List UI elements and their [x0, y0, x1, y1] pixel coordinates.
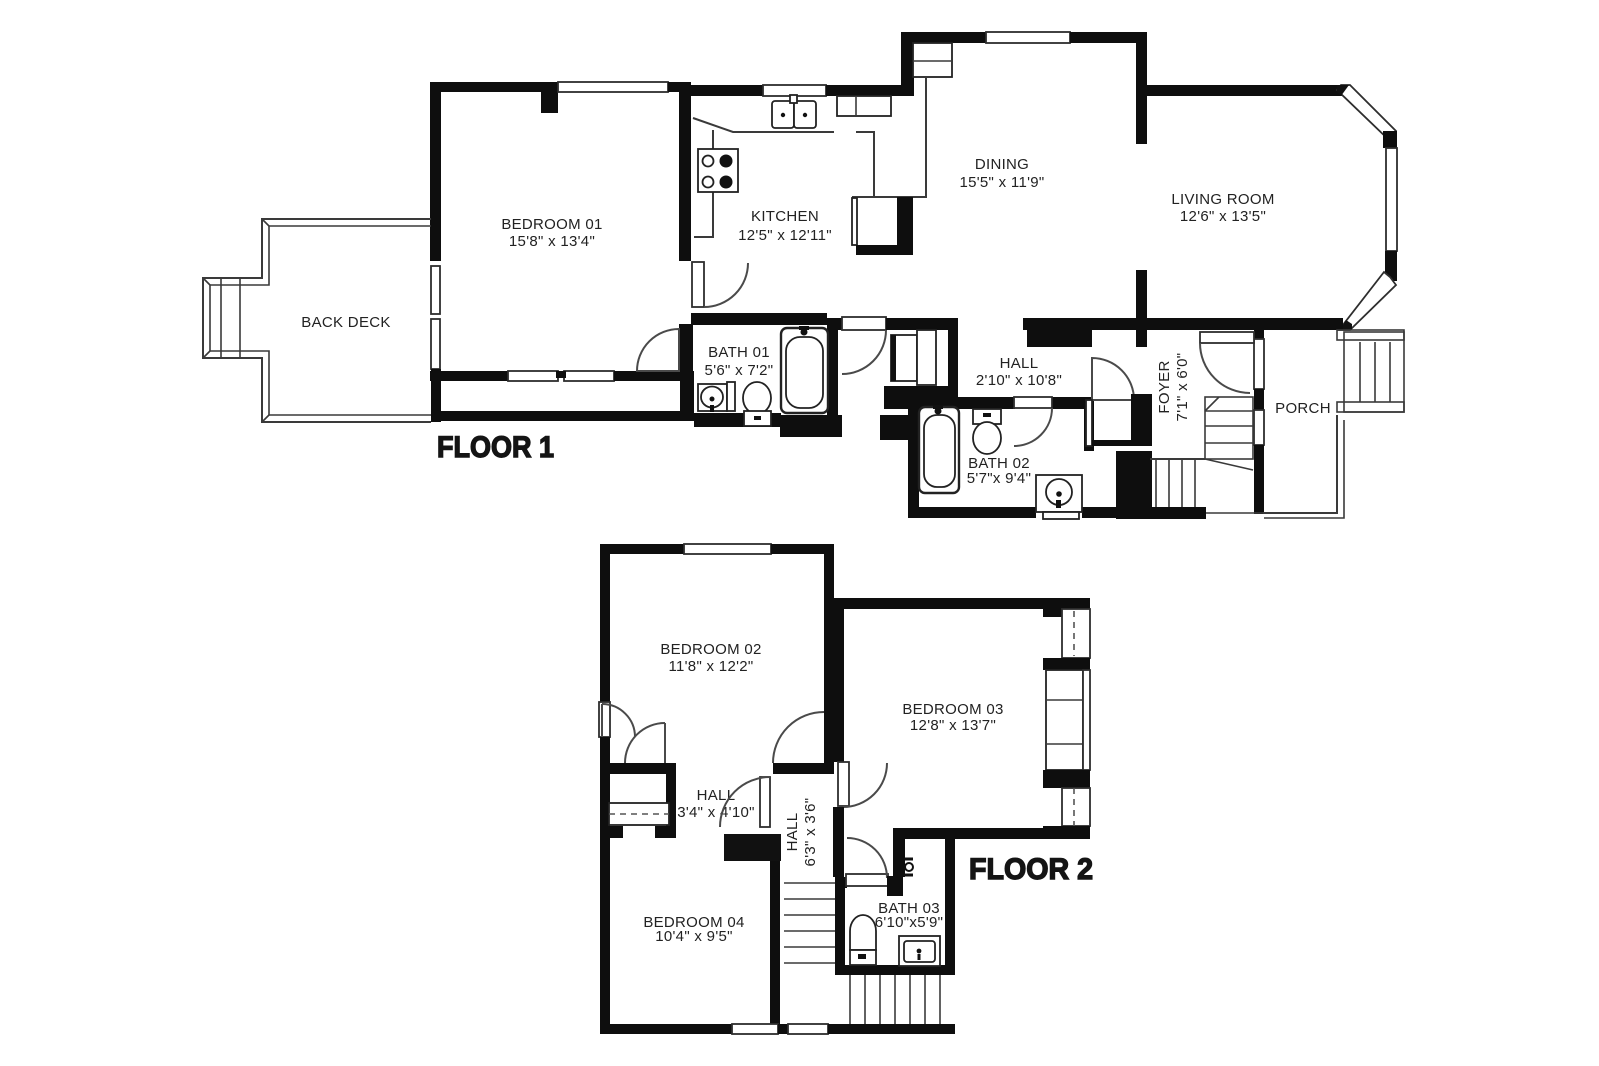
svg-text:6'10"x5'9": 6'10"x5'9" [875, 914, 944, 931]
svg-text:3'4" x 4'10": 3'4" x 4'10" [677, 804, 755, 821]
svg-text:FLOOR 1: FLOOR 1 [437, 431, 554, 464]
svg-text:BATH 01: BATH 01 [708, 344, 770, 361]
svg-text:7'1" x 6'0": 7'1" x 6'0" [1174, 353, 1191, 422]
svg-text:5'7"x 9'4": 5'7"x 9'4" [967, 470, 1031, 487]
svg-text:FLOOR 2: FLOOR 2 [969, 853, 1093, 886]
svg-text:15'5" x 11'9": 15'5" x 11'9" [959, 174, 1044, 191]
svg-text:10'4" x 9'5": 10'4" x 9'5" [655, 928, 733, 945]
svg-text:12'6" x 13'5": 12'6" x 13'5" [1180, 208, 1266, 225]
svg-text:HALL: HALL [1000, 355, 1039, 372]
svg-text:15'8" x 13'4": 15'8" x 13'4" [509, 233, 595, 250]
svg-text:11'8" x 12'2": 11'8" x 12'2" [668, 658, 753, 675]
svg-text:PORCH: PORCH [1275, 400, 1331, 417]
svg-text:HALL: HALL [784, 813, 801, 852]
svg-text:12'8" x 13'7": 12'8" x 13'7" [910, 717, 996, 734]
svg-text:5'6" x 7'2": 5'6" x 7'2" [705, 362, 774, 379]
svg-text:KITCHEN: KITCHEN [751, 208, 819, 225]
svg-text:HALL: HALL [697, 787, 736, 804]
svg-text:BEDROOM 03: BEDROOM 03 [902, 701, 1003, 718]
svg-text:LIVING ROOM: LIVING ROOM [1171, 191, 1274, 208]
svg-text:2'10" x 10'8": 2'10" x 10'8" [976, 372, 1062, 389]
svg-text:12'5" x 12'11": 12'5" x 12'11" [738, 227, 832, 244]
svg-text:6'3" x 3'6": 6'3" x 3'6" [802, 798, 819, 867]
svg-text:BEDROOM 01: BEDROOM 01 [501, 216, 602, 233]
svg-text:DINING: DINING [975, 156, 1029, 173]
svg-text:BACK DECK: BACK DECK [301, 314, 390, 331]
svg-text:FOYER: FOYER [1156, 360, 1173, 413]
svg-text:BEDROOM 02: BEDROOM 02 [660, 641, 761, 658]
